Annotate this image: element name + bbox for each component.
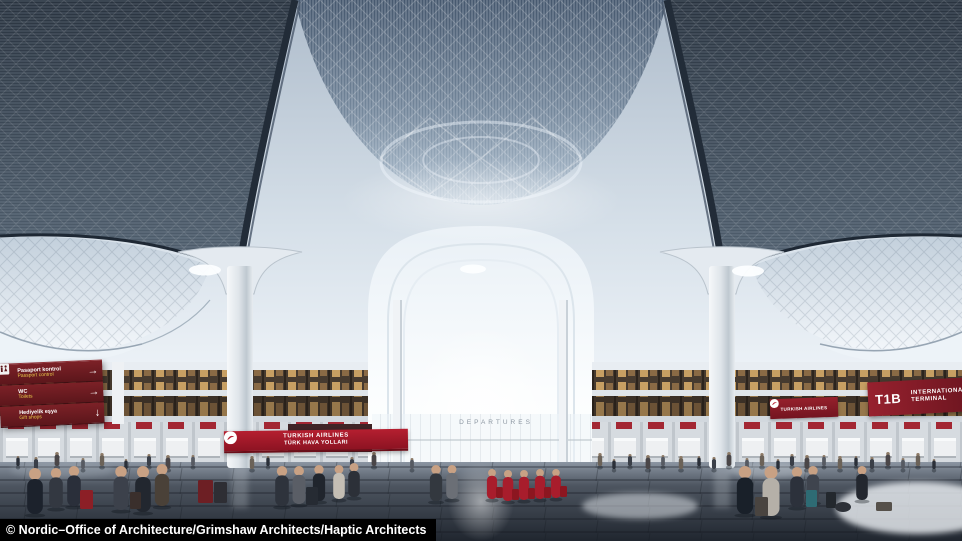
arrow-down-icon: ↓	[88, 407, 101, 420]
copyright-caption: © Nordic–Office of Architecture/Grimshaw…	[0, 519, 436, 541]
divider	[906, 387, 907, 409]
scene-art	[0, 0, 962, 541]
wayfinding-sign: Pasaport kontrol Passport control → WC T…	[0, 359, 105, 427]
terminal-code: T1B	[875, 390, 902, 406]
terminal-line2: TERMINAL	[911, 394, 962, 404]
airline-name: TURKISH AIRLINES	[780, 405, 827, 412]
turkish-airlines-logo-icon	[770, 399, 779, 408]
sign-label-en: Toilets	[18, 393, 84, 402]
departures-sign: DEPARTURES	[436, 419, 556, 426]
sign-label-en: Passport control	[17, 372, 83, 381]
terminal-t1b-sign: T1B INTERNATIONAL TERMINAL	[867, 378, 962, 417]
turkish-airlines-banner: TURKISH AIRLINES TÜRK HAVA YOLLARI	[224, 429, 408, 454]
arrow-right-icon: →	[87, 386, 100, 399]
turkish-airlines-logo-icon	[224, 431, 237, 444]
light-pool	[582, 493, 698, 519]
arrow-right-icon: →	[86, 365, 99, 378]
sign-label-en: Gift shops	[19, 414, 85, 423]
toilets-icon	[3, 389, 16, 402]
terminal-rendering: DEPARTURES Pasaport kontrol Passport con…	[0, 0, 962, 541]
gift-shops-icon	[4, 410, 17, 423]
turkish-airlines-board: TURKISH AIRLINES	[770, 397, 839, 419]
airline-name-tr: TÜRK HAVA YOLLARI	[283, 440, 349, 448]
